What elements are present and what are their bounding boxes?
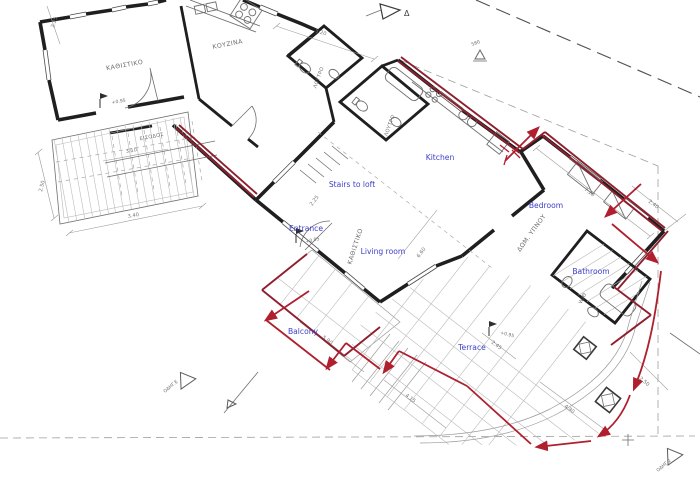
- label-entrance: Entrance: [289, 224, 323, 233]
- survey-right-label: ΟΔΗΓ.2: [655, 458, 672, 474]
- bedroom-closets: [567, 162, 634, 219]
- dim-terrace-a: 2.45: [490, 340, 503, 352]
- dim-deck-width: 2.50: [38, 180, 47, 192]
- survey-left-label: ΟΔΗΓ.Ε: [162, 379, 179, 395]
- pencil-labels: ΚΑΘΙΣΤΙΚΟ ΚΟΥΖΙΝΑ ΕΙΣΟΔΟΣ ΚΑΘΙΣΤΙΚΟ ΔΩΜ.…: [106, 38, 589, 305]
- level-old-living: +0.95: [111, 98, 126, 106]
- label-old-kitchen: ΚΟΥΖΙΝΑ: [212, 38, 244, 51]
- label-bedroom: Bedroom: [529, 201, 563, 210]
- dim-bed-side: 2.40: [647, 199, 660, 211]
- dim-living: 6.60: [416, 247, 428, 260]
- label-bathroom: Bathroom: [572, 267, 609, 276]
- level-entrance: +0.95: [305, 236, 320, 245]
- dim-terrace-d: 2.50: [638, 376, 651, 388]
- upper-bathrooms: [288, 26, 428, 140]
- label-bedroom-greek: ΔΩΜ. ΥΠΝΟΥ: [516, 213, 548, 253]
- floor-plan-drawing: Δ 580 ΟΔΗΓ.Ε ΟΔΗΓ.2: [0, 0, 700, 500]
- benchmark-marker: 580: [471, 39, 487, 61]
- dim-corner: 2.25: [50, 16, 59, 29]
- old-wing-walls: [40, 0, 318, 200]
- label-kitchen: Kitchen: [426, 153, 455, 162]
- terrace-column-1: [574, 337, 596, 359]
- north-arrow-icon: Δ: [366, 4, 410, 19]
- dim-terrace-b: 4.15: [404, 393, 417, 405]
- label-balcony: Balcony: [288, 327, 319, 336]
- dimension-lines: 5.20 2.50 3.40 3.10 2.25 5.90 6.60 2.25 …: [35, 6, 686, 432]
- elevation-marks: +0.95 +0.95 +0.95: [100, 93, 515, 339]
- benchmark-label: 580: [471, 39, 481, 48]
- label-stairs: Stairs to loft: [329, 180, 375, 189]
- new-wing-walls: [256, 60, 664, 323]
- dim-stair: 2.25: [309, 195, 321, 208]
- level-terrace: +0.95: [500, 330, 515, 339]
- terrace-column-2: [595, 387, 620, 412]
- label-terrace: Terrace: [457, 343, 486, 352]
- north-label: Δ: [404, 9, 410, 18]
- survey-marker-right: ΟΔΗΓ.2: [655, 443, 682, 473]
- dim-porch: 3.10: [125, 147, 137, 155]
- label-living: Living room: [361, 247, 406, 256]
- new-kitchen-fixtures: [412, 82, 509, 154]
- survey-marker-left: ΟΔΗΓ.Ε: [162, 367, 258, 413]
- dim-terrace-c: 4.80: [563, 404, 576, 416]
- dim-bedroom: 7.10: [583, 187, 596, 199]
- label-old-living: ΚΑΘΙΣΤΙΚΟ: [106, 59, 144, 72]
- dim-top: 5.20: [314, 28, 327, 37]
- blue-room-labels: Kitchen Stairs to loft Entrance Living r…: [288, 153, 610, 352]
- floor-plan-svg: Δ 580 ΟΔΗΓ.Ε ΟΔΗΓ.2: [0, 0, 700, 500]
